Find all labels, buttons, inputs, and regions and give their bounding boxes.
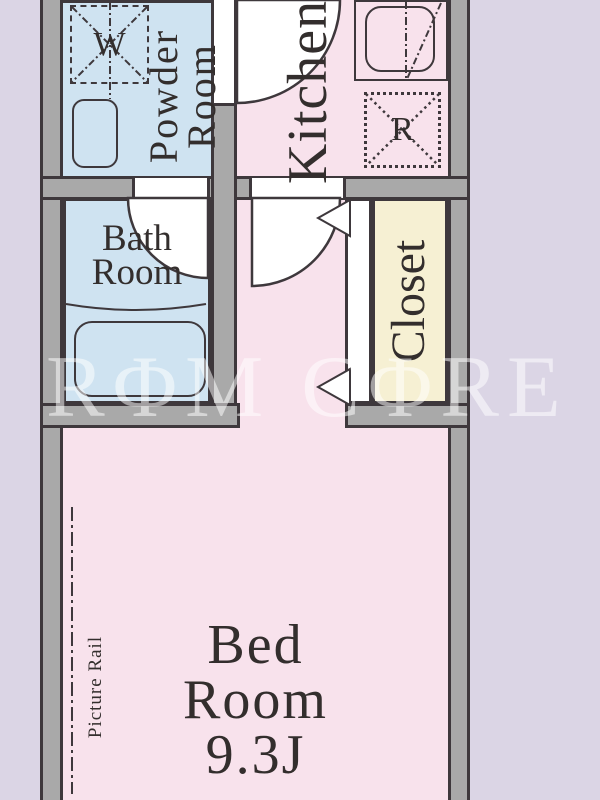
fridge-symbol: R	[364, 92, 441, 168]
wall-top-c	[343, 176, 470, 200]
powder-sink	[72, 99, 118, 168]
kitchen-sink	[365, 6, 435, 72]
powder-room-label: Powder Room	[145, 16, 221, 176]
bed-room-label: Bed Room 9.3J	[63, 618, 448, 783]
fridge-letter: R	[391, 111, 414, 149]
picture-rail-label: Picture Rail	[86, 612, 108, 762]
bath-room-label: Bath Room	[63, 222, 211, 290]
washer-symbol: W	[70, 5, 149, 84]
floor-plan: W R Powder Room Kitchen Bath Room Closet…	[0, 0, 600, 800]
watermark: RΦM CΦRE	[46, 344, 569, 432]
doorway-bath	[135, 176, 207, 200]
kitchen-label: Kitchen	[280, 0, 338, 192]
washer-letter: W	[93, 26, 125, 64]
wall-top-a	[40, 176, 135, 200]
